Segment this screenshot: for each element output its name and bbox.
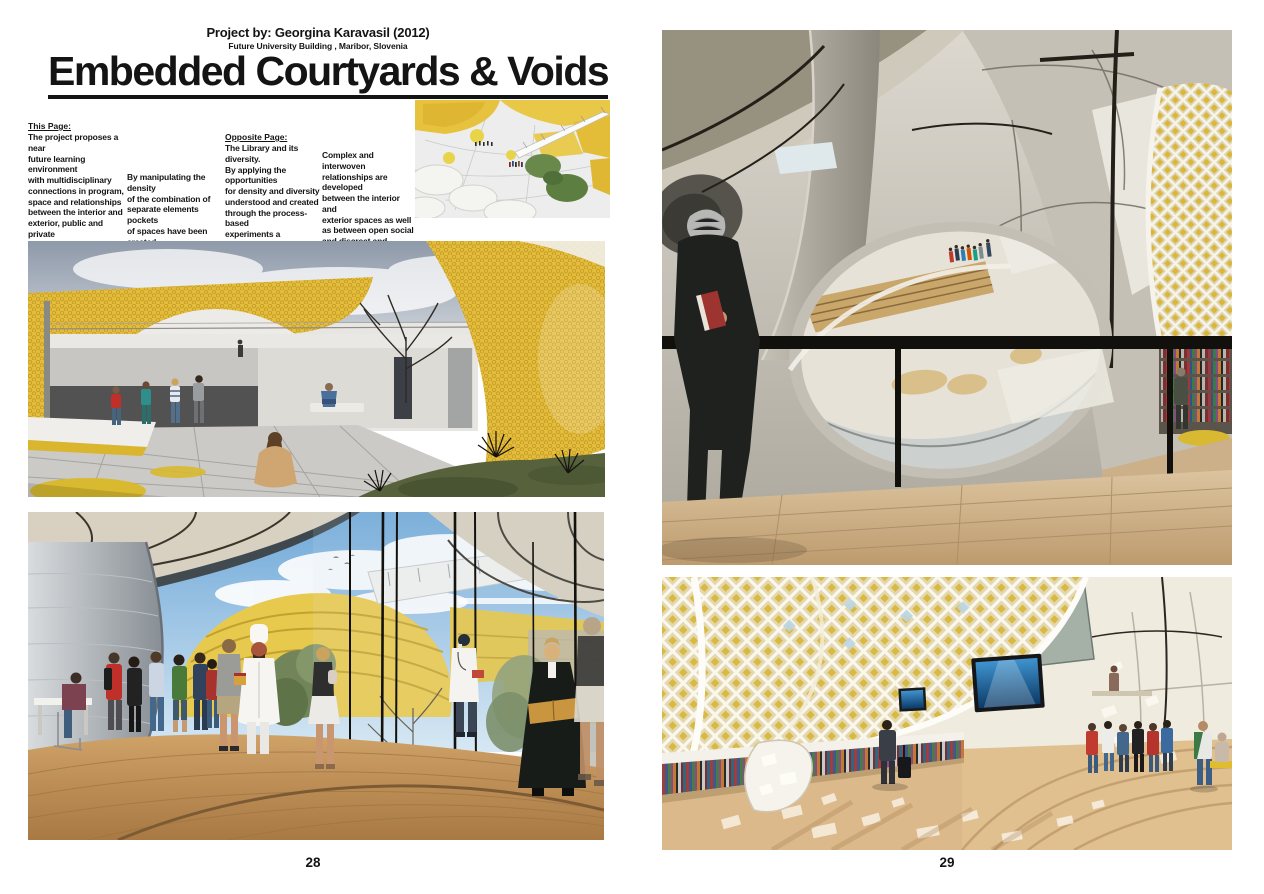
this-page-heading: This Page: [28, 121, 126, 131]
page-title-wrap: Embedded Courtyards & Voids [48, 51, 608, 99]
rendering-library-interior [662, 577, 1232, 850]
opposite-page-heading: Opposite Page: [225, 132, 325, 142]
page-number-left: 28 [263, 855, 363, 870]
rendering-courtyard-aerial [415, 100, 610, 218]
page-title: Embedded Courtyards & Voids [48, 51, 608, 99]
rendering-courtyard-exterior [28, 241, 605, 497]
page-number-right: 29 [897, 855, 997, 870]
rendering-interior-void [662, 30, 1232, 565]
rendering-terrace-interior [28, 512, 604, 840]
book-spread: Project by: Georgina Karavasil (2012) Fu… [0, 0, 1264, 894]
project-byline: Project by: Georgina Karavasil (2012) [48, 25, 588, 40]
